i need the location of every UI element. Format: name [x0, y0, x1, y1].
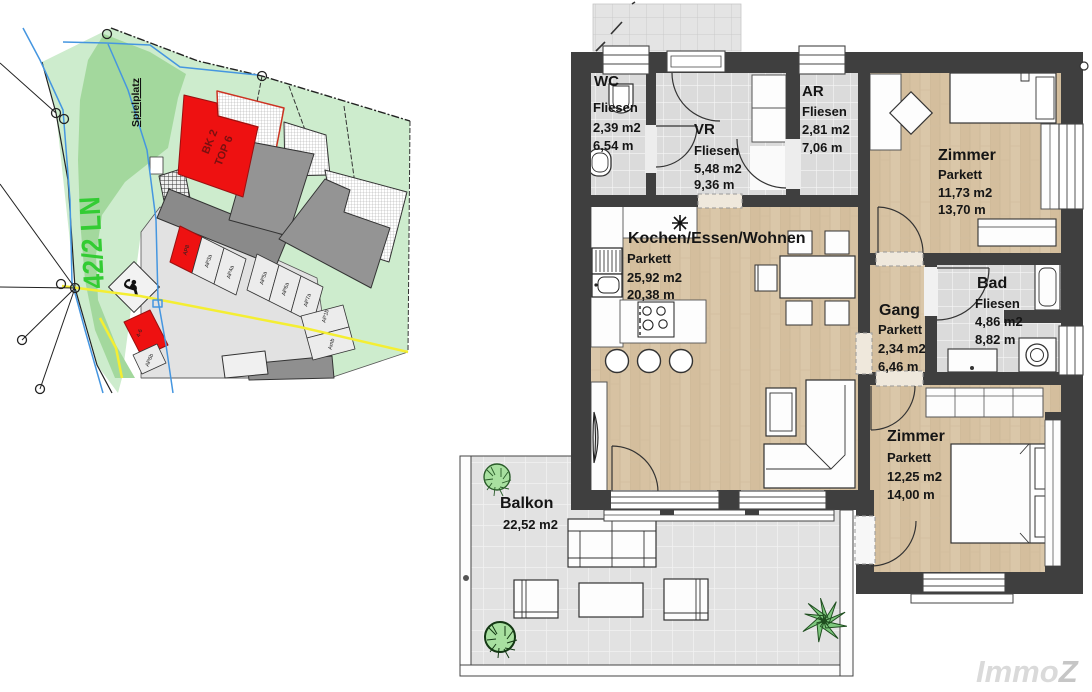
svg-text:Gang: Gang [879, 302, 920, 319]
svg-text:Fliesen: Fliesen [975, 296, 1020, 311]
svg-text:Zimmer: Zimmer [887, 428, 945, 445]
svg-text:Parkett: Parkett [938, 167, 983, 182]
svg-text:7,06 m: 7,06 m [802, 140, 842, 155]
svg-text:20,38 m: 20,38 m [627, 287, 675, 302]
svg-text:Balkon: Balkon [500, 495, 553, 512]
svg-text:6,54 m: 6,54 m [593, 138, 633, 153]
svg-text:Parkett: Parkett [627, 251, 672, 266]
svg-text:Parkett: Parkett [887, 450, 932, 465]
svg-text:Bad: Bad [977, 275, 1007, 292]
svg-text:Parkett: Parkett [878, 322, 923, 337]
svg-text:Fliesen: Fliesen [694, 143, 739, 158]
svg-text:9,36 m: 9,36 m [694, 177, 734, 192]
svg-text:5,48 m2: 5,48 m2 [694, 161, 742, 176]
svg-text:Fliesen: Fliesen [802, 104, 847, 119]
svg-text:2,34 m2: 2,34 m2 [878, 341, 926, 356]
svg-text:14,00 m: 14,00 m [887, 487, 935, 502]
svg-text:4,86 m2: 4,86 m2 [975, 314, 1023, 329]
svg-text:11,73 m2: 11,73 m2 [938, 185, 992, 200]
svg-text:Fliesen: Fliesen [593, 100, 638, 115]
svg-text:12,25 m2: 12,25 m2 [887, 469, 942, 484]
svg-text:2,39 m2: 2,39 m2 [593, 120, 641, 135]
svg-text:WC: WC [594, 73, 619, 90]
svg-text:Kochen/Essen/Wohnen: Kochen/Essen/Wohnen [628, 230, 806, 247]
svg-text:6,46 m: 6,46 m [878, 359, 918, 374]
svg-text:22,52 m2: 22,52 m2 [503, 517, 558, 532]
svg-text:8,82 m: 8,82 m [975, 332, 1015, 347]
svg-text:Zimmer: Zimmer [938, 147, 996, 164]
svg-text:Spielplatz: Spielplatz [130, 78, 142, 127]
svg-text:2,81 m2: 2,81 m2 [802, 122, 850, 137]
svg-text:AR: AR [802, 83, 824, 100]
svg-text:VR: VR [694, 121, 715, 138]
svg-text:13,70 m: 13,70 m [938, 202, 986, 217]
svg-text:25,92 m2: 25,92 m2 [627, 270, 682, 285]
svg-text:ImmoZ: ImmoZ [976, 654, 1079, 689]
svg-text:42/2 LN: 42/2 LN [74, 196, 111, 290]
